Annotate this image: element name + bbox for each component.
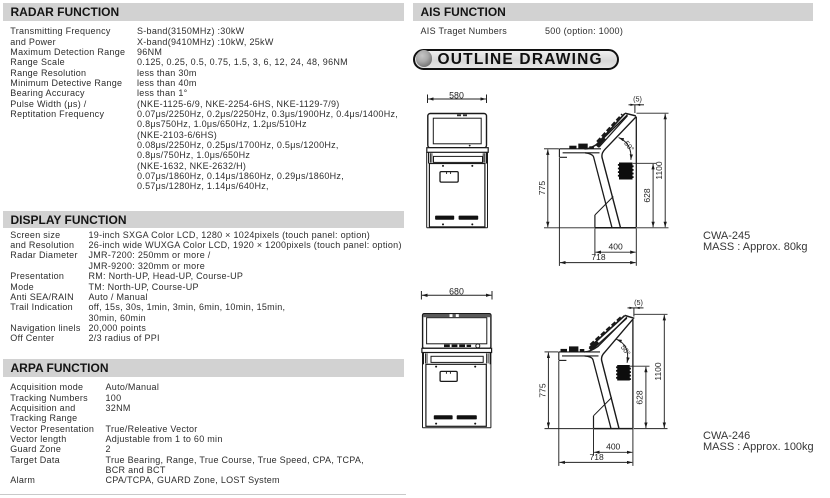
svg-text:628: 628 [635, 390, 645, 404]
svg-text:(5): (5) [633, 95, 642, 104]
svg-text:775: 775 [537, 181, 547, 195]
svg-text:1100: 1100 [654, 161, 664, 180]
svg-text:775: 775 [538, 383, 548, 397]
svg-text:628: 628 [642, 188, 652, 202]
svg-text:680: 680 [449, 287, 464, 297]
svg-text:50°: 50° [619, 343, 633, 357]
svg-text:400: 400 [609, 242, 623, 252]
svg-text:718: 718 [590, 452, 604, 462]
svg-text:1100: 1100 [653, 362, 663, 381]
svg-text:718: 718 [591, 252, 605, 262]
svg-text:400: 400 [606, 442, 620, 452]
svg-text:(5): (5) [634, 298, 643, 307]
svg-text:580: 580 [449, 91, 464, 101]
